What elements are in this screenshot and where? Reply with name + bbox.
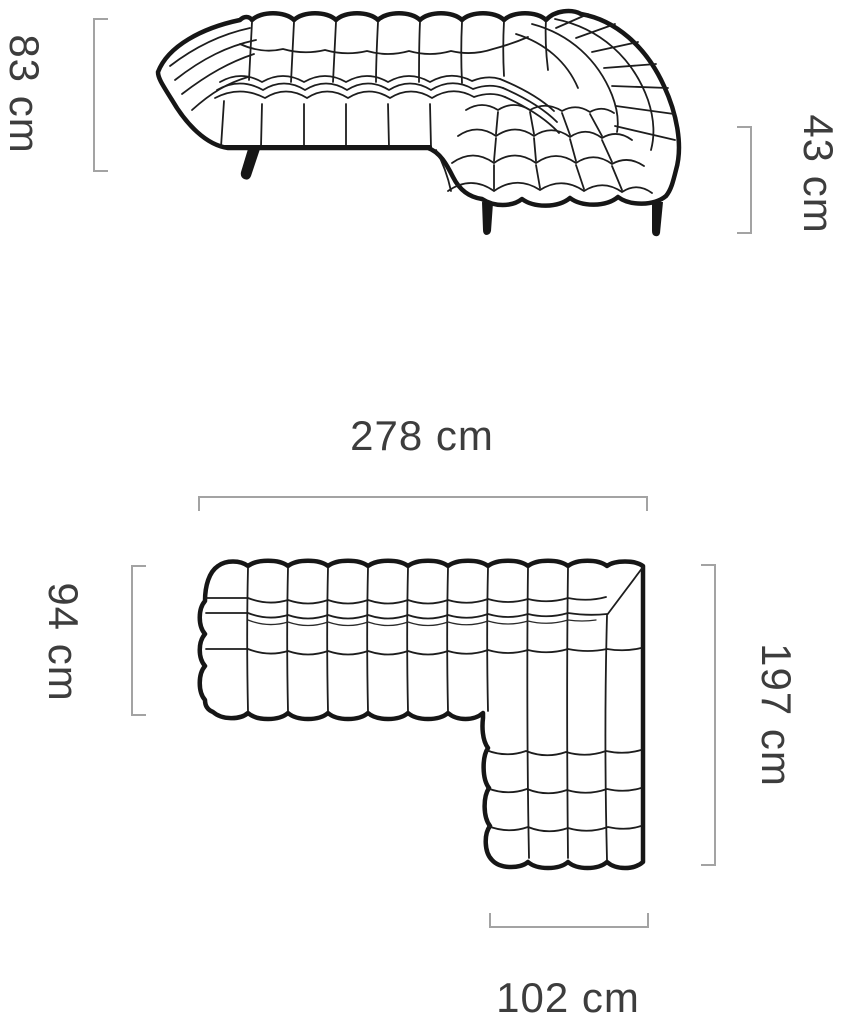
dimension-label-side-length: 197 cm <box>755 630 797 800</box>
depth-dimension-bracket <box>132 566 146 715</box>
dimension-label-chaise-width: 102 cm <box>468 976 668 1020</box>
dimension-label-seat-height: 43 cm <box>797 89 839 259</box>
total-width-dimension-bracket <box>199 497 647 511</box>
chaise-width-dimension-bracket <box>490 913 648 927</box>
side-length-dimension-bracket <box>701 565 715 865</box>
sofa-diagram-svg <box>0 0 842 1020</box>
seat-height-dimension-bracket <box>737 127 751 233</box>
plan-sofa-outline <box>200 561 643 868</box>
dimension-label-depth: 94 cm <box>42 557 84 727</box>
height-dimension-bracket <box>94 19 108 171</box>
elevation-view-drawing <box>158 11 679 236</box>
dimension-label-height: 83 cm <box>3 9 45 179</box>
dimension-label-total-width: 278 cm <box>322 414 522 458</box>
diagram-canvas: 83 cm 43 cm 278 cm 94 cm 197 cm 102 cm <box>0 0 842 1020</box>
plan-view-drawing <box>200 561 643 868</box>
